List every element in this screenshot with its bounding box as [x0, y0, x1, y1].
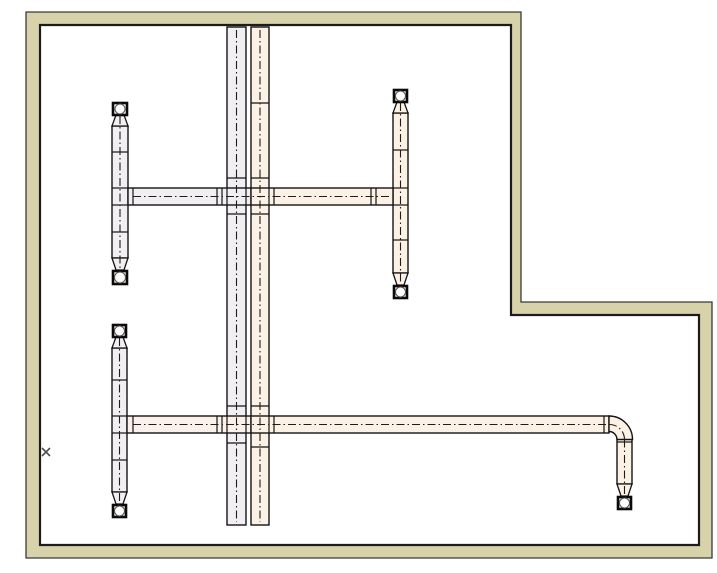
valve-lower-left-bottom-port-icon [115, 506, 125, 516]
valve-end-drop-port-icon [620, 498, 630, 508]
valve-upper-left-bottom-port-icon [115, 272, 126, 283]
drawing-canvas[interactable] [0, 0, 717, 573]
elbow-bottom-right[interactable] [609, 416, 633, 440]
valve-upper-right-top-port-icon [396, 91, 406, 101]
wall-band[interactable] [26, 12, 712, 558]
wall-outer-edge [26, 12, 712, 558]
valve-lower-left-top-port-icon [115, 326, 125, 336]
radiator-riser-upper-left[interactable] [112, 126, 128, 258]
valve-upper-left-top-port-icon [115, 104, 125, 114]
cad-viewport [0, 0, 717, 573]
wall-inner-edge [40, 25, 699, 545]
valve-upper-right-bottom-port-icon [396, 287, 406, 297]
